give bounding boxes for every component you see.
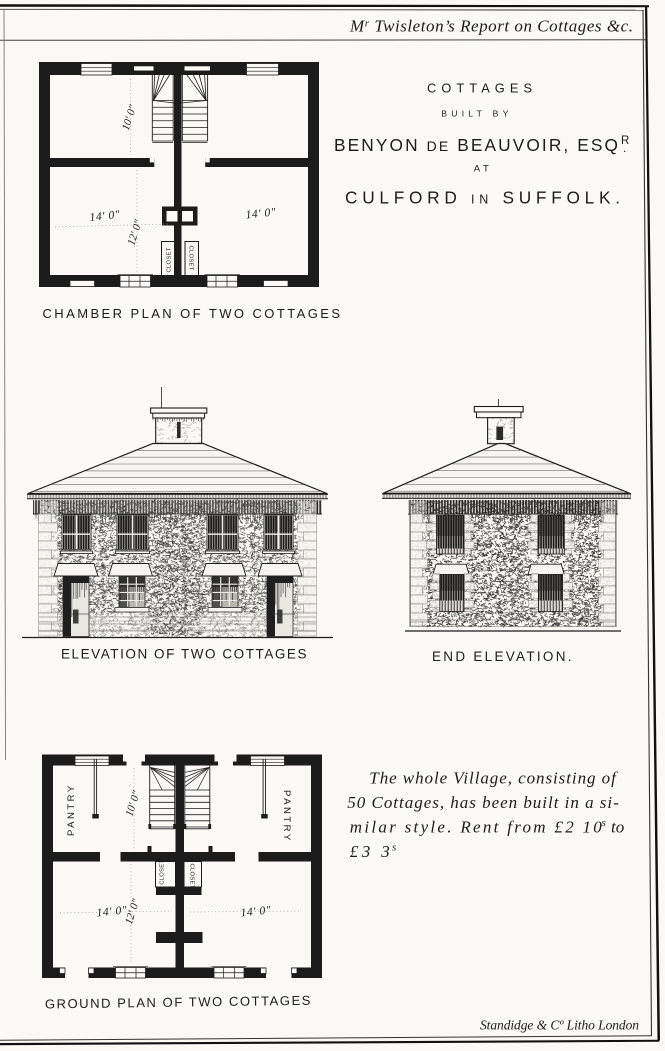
svg-text:Mr Twisleton’s Report on Cotta: Mr Twisleton’s Report on Cottages &c. bbox=[349, 17, 633, 36]
svg-text:CLOSET: CLOSET bbox=[160, 860, 166, 885]
svg-text:The whole Village, consisting: The whole Village, consisting of bbox=[369, 769, 618, 788]
svg-text:PANTRY: PANTRY bbox=[66, 783, 77, 836]
svg-text:CLOSET: CLOSET bbox=[166, 247, 172, 272]
svg-text:50 Cottages, has been built in: 50 Cottages, has been built in a si- bbox=[347, 793, 619, 812]
svg-text:END ELEVATION.: END ELEVATION. bbox=[432, 649, 572, 664]
svg-text:Standidge & Cº Litho London: Standidge & Cº Litho London bbox=[480, 1018, 639, 1033]
svg-text:ELEVATION OF TWO COTTAGES: ELEVATION OF TWO COTTAGES bbox=[61, 647, 307, 662]
svg-text:PANTRY: PANTRY bbox=[281, 790, 292, 843]
svg-text:to: to bbox=[611, 818, 624, 837]
svg-text:.: . bbox=[623, 141, 626, 155]
svg-text:s: s bbox=[602, 817, 606, 829]
svg-text:CLOSET: CLOSET bbox=[189, 864, 195, 889]
svg-text:CLOSET: CLOSET bbox=[187, 246, 193, 271]
svg-text:£3 3: £3 3 bbox=[350, 842, 390, 861]
svg-text:s: s bbox=[392, 842, 396, 854]
